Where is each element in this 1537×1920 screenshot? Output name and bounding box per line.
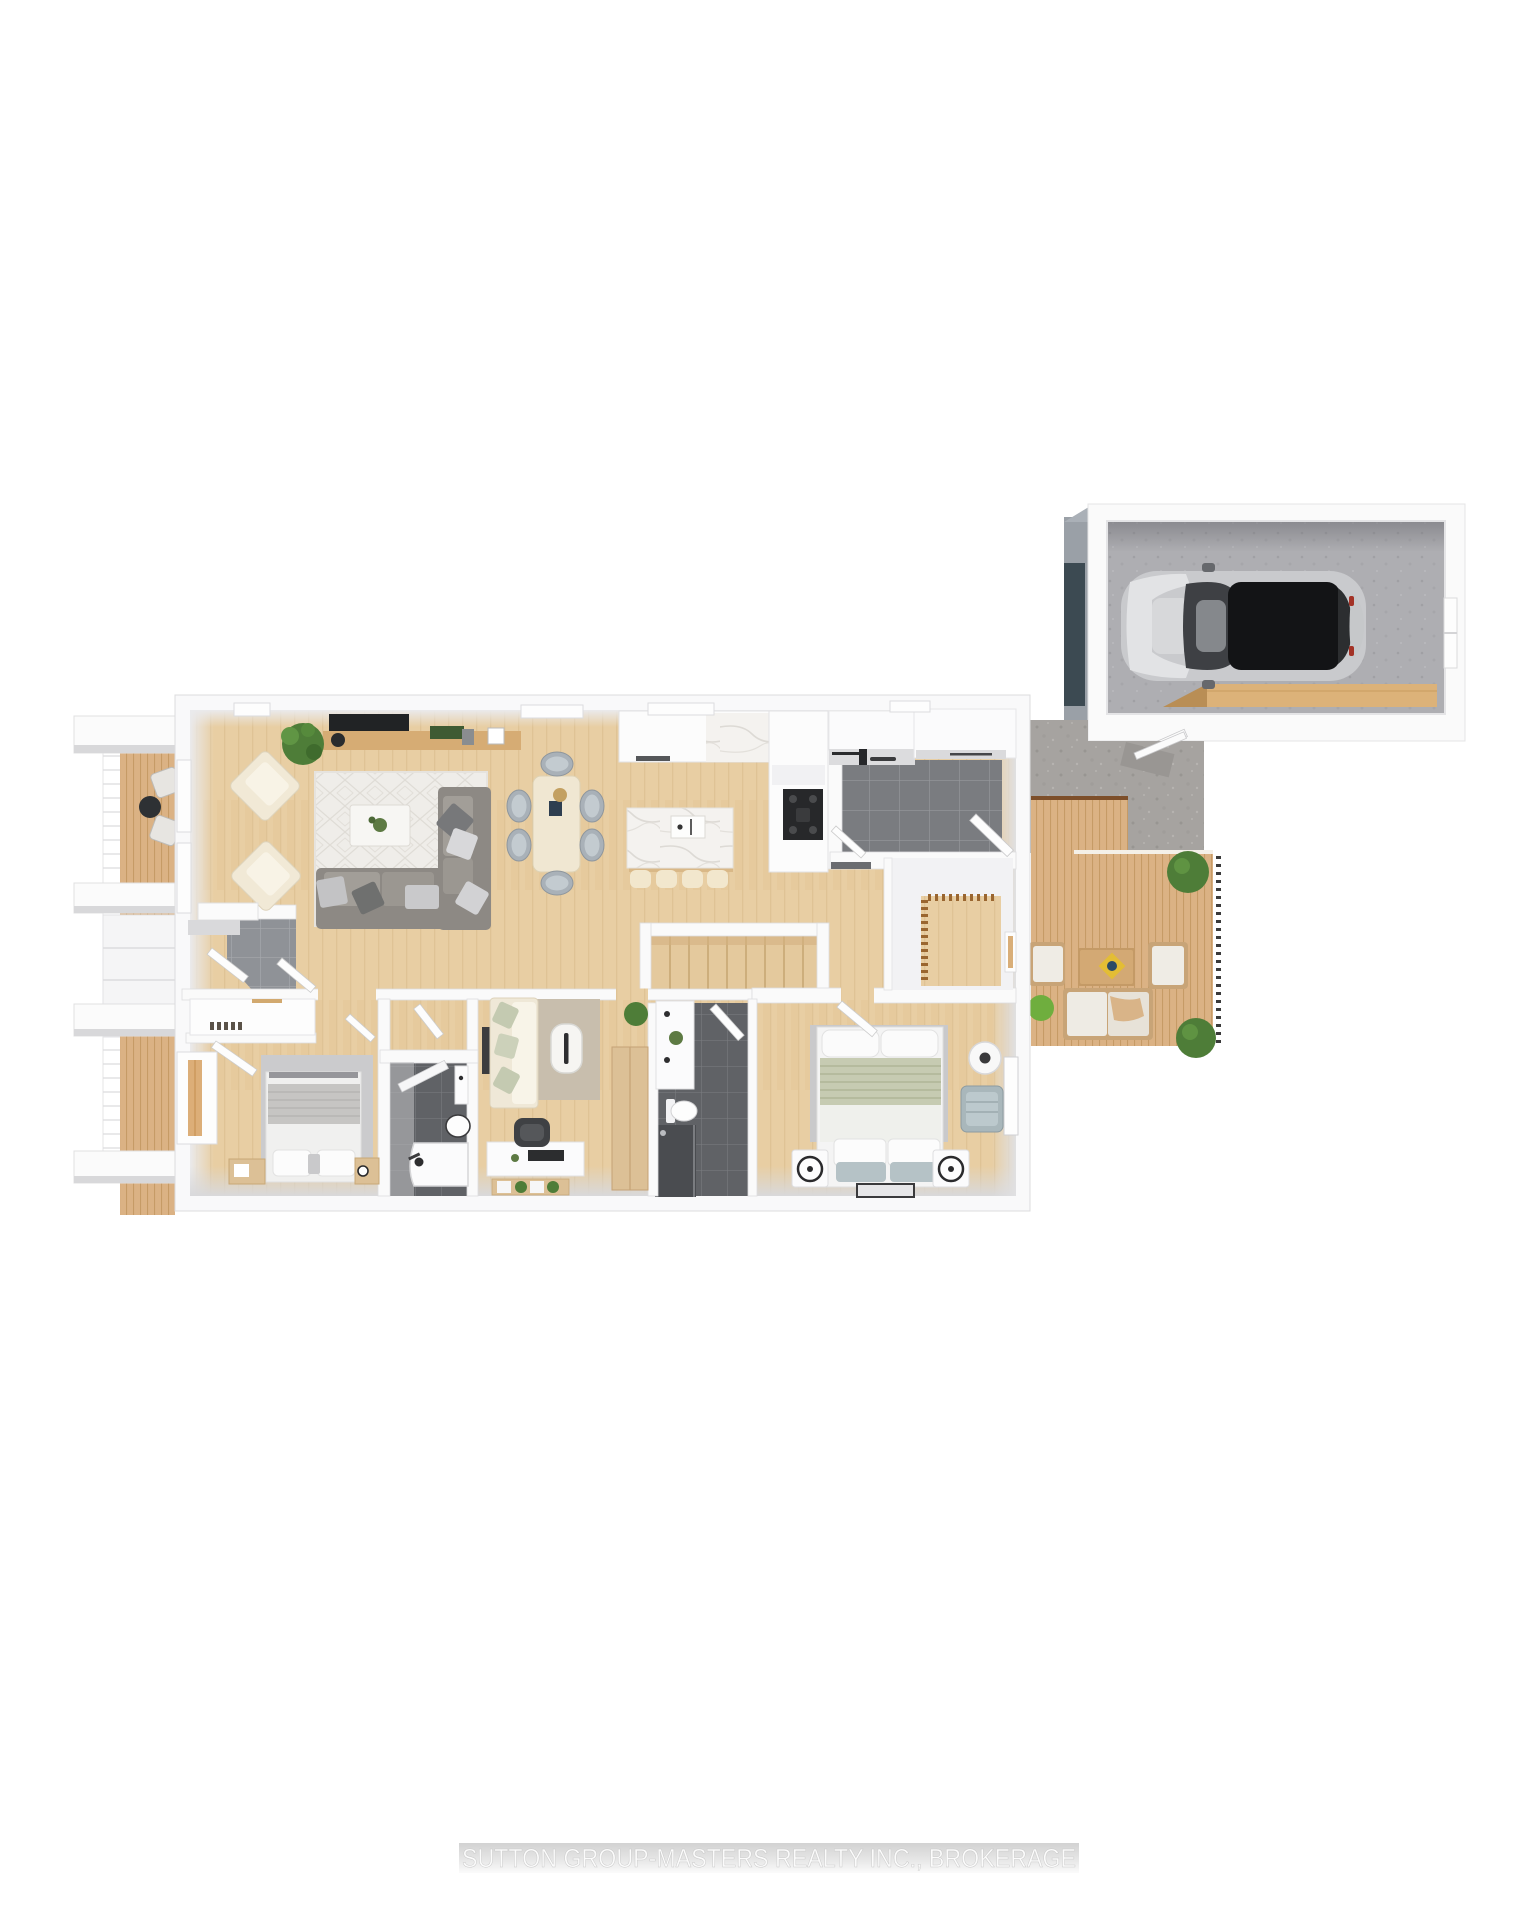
svg-text:SUTTON GROUP-MASTERS REALTY IN: SUTTON GROUP-MASTERS REALTY INC., BROKER…: [462, 1843, 1076, 1873]
